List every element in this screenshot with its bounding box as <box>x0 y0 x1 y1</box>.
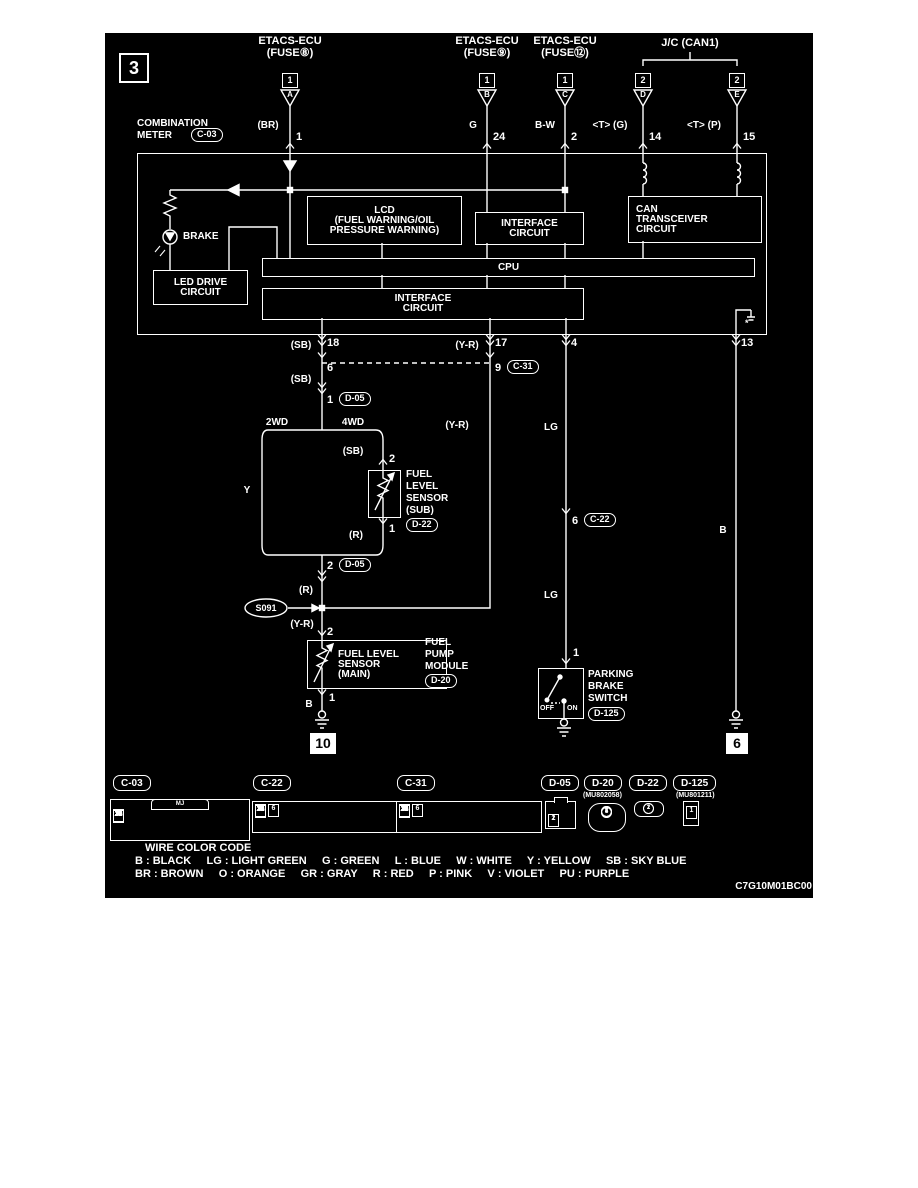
pin-number: 18 <box>327 338 339 349</box>
pin-number: 9 <box>495 363 501 374</box>
pin-number: 2 <box>327 627 333 638</box>
terminal-letter: D <box>640 91 646 99</box>
pin-number: 1 <box>389 524 395 535</box>
ground-icon <box>319 711 326 718</box>
wire-color-label: (SB) <box>291 341 312 351</box>
legend-title: WIRE COLOR CODE <box>145 843 251 854</box>
block-label: PRESSURE WARNING) <box>330 226 439 236</box>
pin-number: 13 <box>741 338 753 349</box>
component-label: LEVEL <box>406 482 438 492</box>
block-label: CIRCUIT <box>180 288 221 298</box>
ground-icon <box>315 720 329 728</box>
header-wires <box>290 106 737 153</box>
wire-color-label: (BR) <box>257 121 278 131</box>
terminal-letter: C <box>562 91 568 99</box>
page: 3 ETACS-ECU (FUSE⑧) ETACS-ECU (FUSE⑨) ET… <box>0 0 918 1188</box>
lcd-box: LCD (FUEL WARNING/OIL PRESSURE WARNING) <box>307 196 462 245</box>
component-label: SENSOR <box>406 494 448 504</box>
connector-tag: C-22 <box>584 513 616 527</box>
connector-ref-box: 1 <box>479 73 495 88</box>
jc-label: J/C (CAN1) <box>661 38 718 49</box>
pin-number: 17 <box>495 338 507 349</box>
connector-tag: C-22 <box>253 775 291 791</box>
wire-color-label: (Y-R) <box>290 620 313 630</box>
connector-ref-box: 1 <box>557 73 573 88</box>
wire-color-label: B <box>719 526 726 536</box>
source-fuse: (FUSE⑧) <box>267 48 314 59</box>
ground-icon <box>557 728 571 736</box>
cpu-label: CPU <box>498 263 519 273</box>
pin-number: 1 <box>296 132 302 143</box>
part-number: (MU801211) <box>676 792 715 799</box>
pin-number: 14 <box>649 132 661 143</box>
splice-label: S091 <box>255 604 276 613</box>
split-bracket-bottom <box>262 545 383 555</box>
connector-pin-cell: 24 <box>113 810 124 823</box>
switch-off-label: OFF <box>540 705 554 712</box>
page-number-badge: 3 <box>119 53 149 83</box>
connector-key-tab: MJ <box>151 799 209 810</box>
connector-tag: C-03 <box>113 775 151 791</box>
connector-ref-box: 2 <box>635 73 651 88</box>
interface-circuit-box-2: INTERFACE CIRCUIT <box>262 288 584 320</box>
ground-ref-box: 6 <box>726 733 748 754</box>
connector-pin-cell: 2 <box>548 814 559 827</box>
wire-color-label: (Y-R) <box>445 421 468 431</box>
block-label: (FUEL WARNING/OIL <box>335 216 435 226</box>
pin-number: 4 <box>571 338 577 349</box>
wire-color-label: B-W <box>535 121 555 131</box>
block-label: LED DRIVE <box>174 278 227 288</box>
component-label: (MAIN) <box>338 670 370 680</box>
terminal-letter: B <box>484 91 490 99</box>
connector-pin-cell: 24 <box>255 805 266 818</box>
junction-dot <box>320 606 325 611</box>
connector-pinout-d22: 12 <box>634 801 664 817</box>
component-label: SENSOR <box>338 660 380 670</box>
block-label: CIRCUIT <box>509 229 550 239</box>
pin-number: 1 <box>327 395 333 406</box>
block-label: CAN <box>636 205 658 215</box>
connector-tag: D-05 <box>339 392 371 406</box>
connector-pin-cell: 24 <box>399 805 410 818</box>
pin-number: 1 <box>329 693 335 704</box>
drivetrain-option-label: 2WD <box>266 418 288 428</box>
pin-number: 2 <box>389 454 395 465</box>
internal-ground-note: * <box>745 319 749 328</box>
connector-tag: D-05 <box>541 775 579 791</box>
connector-tag: C-31 <box>507 360 539 374</box>
ground-icon <box>561 719 568 726</box>
pin-number: 2 <box>571 132 577 143</box>
led-drive-circuit-box: LED DRIVE CIRCUIT <box>153 270 248 305</box>
source-name: ETACS-ECU <box>258 36 321 47</box>
pin-number: 24 <box>493 132 505 143</box>
block-label: CIRCUIT <box>403 304 444 314</box>
drivetrain-option-label: 4WD <box>342 418 364 428</box>
connector-pinout-d05: 12 <box>545 801 576 829</box>
component-label: PUMP <box>425 650 454 660</box>
connector-tag: D-20 <box>425 674 457 688</box>
terminal-letter: A <box>287 91 293 99</box>
meter-name: METER <box>137 131 172 141</box>
connector-pin-cell: 5 <box>601 807 612 818</box>
connector-pin-cell: 1 <box>686 806 697 819</box>
wire-color-label: G <box>469 121 477 131</box>
ground-icon <box>733 711 740 718</box>
connector-ref-box: 2 <box>729 73 745 88</box>
meter-connector-tag: C-03 <box>191 128 223 142</box>
source-name: ETACS-ECU <box>533 36 596 47</box>
wire-color-label: B <box>305 700 312 710</box>
block-label: LCD <box>374 206 395 216</box>
source-name: ETACS-ECU <box>455 36 518 47</box>
wiring-diagram-canvas: 3 ETACS-ECU (FUSE⑧) ETACS-ECU (FUSE⑨) ET… <box>105 33 813 898</box>
connector-tag: D-22 <box>629 775 667 791</box>
switch-on-label: ON <box>567 705 578 712</box>
component-label: FUEL LEVEL <box>338 650 399 660</box>
terminal-letter: E <box>734 91 739 99</box>
connector-tag: D-125 <box>673 775 716 791</box>
wire-color-label: <T> (G) <box>592 121 627 131</box>
wire-color-label: (SB) <box>343 447 364 457</box>
wire-color-label: (R) <box>299 586 313 596</box>
connector-pinout-d20: 12345 <box>588 803 626 832</box>
ground-icon <box>729 720 743 728</box>
fuel-level-sensor-sub-box <box>368 470 401 518</box>
connector-pinout-c03: MJ 1234567891011121314151617181920212223… <box>110 799 250 841</box>
connector-tag: D-22 <box>406 518 438 532</box>
wire-color-label: Y <box>244 486 251 496</box>
pin-number: 2 <box>327 561 333 572</box>
legend-line: BR : BROWN O : ORANGE GR : GRAY R : RED … <box>135 869 629 880</box>
splice-arrowhead <box>312 605 319 612</box>
pin-number: 6 <box>572 516 578 527</box>
wire-color-label: <T> (P) <box>687 121 721 131</box>
connector-pin-cell: 6 <box>268 804 279 817</box>
component-label: PARKING <box>588 670 633 680</box>
connector-pin-cell: 6 <box>412 804 423 817</box>
brake-led-label: BRAKE <box>183 232 219 242</box>
ground-ref-box: 10 <box>310 733 336 754</box>
diagram-code: C7G10M01BC00 <box>735 882 812 892</box>
connector-tag: D-20 <box>584 775 622 791</box>
component-label: FUEL <box>425 638 451 648</box>
component-label: (SUB) <box>406 506 434 516</box>
component-label: MODULE <box>425 662 468 672</box>
block-label: CIRCUIT <box>636 225 677 235</box>
source-fuse: (FUSE⑫) <box>541 48 589 59</box>
connector-tag: C-31 <box>397 775 435 791</box>
wire-color-label: (SB) <box>291 375 312 385</box>
component-label: FUEL <box>406 470 432 480</box>
block-label: TRANSCEIVER <box>636 215 708 225</box>
connector-tag: D-05 <box>339 558 371 572</box>
pin-number: 1 <box>573 648 579 659</box>
source-fuse: (FUSE⑨) <box>464 48 511 59</box>
connector-pinout-c31: 123456789101112131415161718192021222324 <box>396 801 542 833</box>
block-label: INTERFACE <box>501 219 558 229</box>
connector-pin-cell: 2 <box>643 803 654 814</box>
connector-tag: D-125 <box>588 707 625 721</box>
wire-color-label: (Y-R) <box>455 341 478 351</box>
component-label: BRAKE <box>588 682 624 692</box>
connector-pinout-d125: 1 <box>683 801 699 826</box>
connector-ref-box: 1 <box>282 73 298 88</box>
pin-number: 15 <box>743 132 755 143</box>
can-transceiver-box: CAN TRANSCEIVER CIRCUIT <box>628 196 762 243</box>
legend-line: B : BLACK LG : LIGHT GREEN G : GREEN L :… <box>135 856 686 867</box>
wire-color-label: LG <box>544 591 558 601</box>
part-number: (MU802058) <box>583 792 622 799</box>
connector-pinout-c22: 123456789101112131415161718192021222324 <box>252 801 398 833</box>
component-label: SWITCH <box>588 694 627 704</box>
cpu-bar: CPU <box>262 258 755 277</box>
split-bracket-top <box>262 430 383 440</box>
wire-color-label: (R) <box>349 531 363 541</box>
interface-circuit-box-1: INTERFACE CIRCUIT <box>475 212 584 245</box>
terminal-triangles <box>281 90 746 106</box>
jc-bracket <box>643 52 737 66</box>
pin-number: 6 <box>327 363 333 374</box>
wire-color-label: LG <box>544 423 558 433</box>
